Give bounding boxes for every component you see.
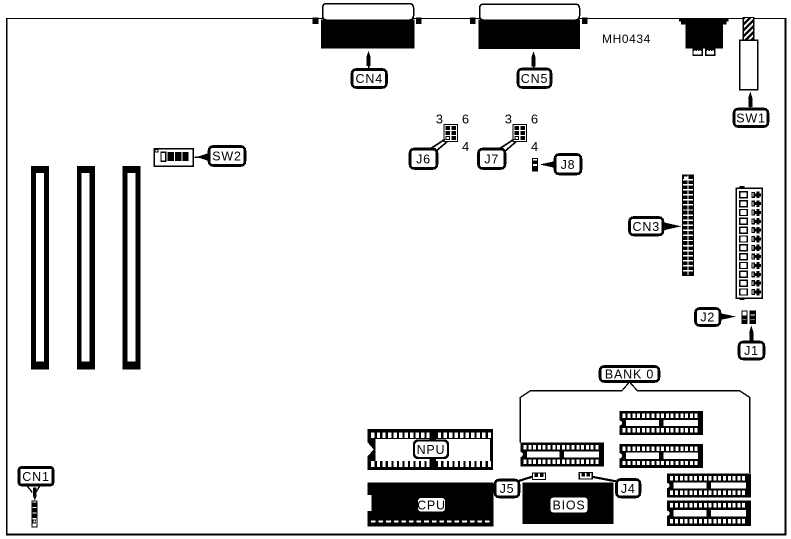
svg-text:CPU: CPU <box>417 498 446 512</box>
svg-text:J5: J5 <box>500 482 515 496</box>
svg-text:SW1: SW1 <box>736 111 766 125</box>
svg-text:J4: J4 <box>621 482 636 496</box>
svg-text:4: 4 <box>462 139 469 154</box>
svg-text:BIOS: BIOS <box>552 499 585 513</box>
svg-text:4: 4 <box>531 139 538 154</box>
svg-text:SW2: SW2 <box>212 150 242 164</box>
svg-text:CN1: CN1 <box>22 470 49 484</box>
svg-text:J8: J8 <box>561 158 576 172</box>
svg-text:BANK 0: BANK 0 <box>605 368 654 382</box>
svg-text:6: 6 <box>531 112 538 127</box>
svg-text:6: 6 <box>462 112 469 127</box>
svg-text:J6: J6 <box>416 152 431 166</box>
svg-text:J1: J1 <box>744 344 759 358</box>
svg-text:CN3: CN3 <box>633 220 660 234</box>
svg-text:CN4: CN4 <box>356 72 383 86</box>
svg-text:J2: J2 <box>700 311 715 325</box>
svg-text:MH0434: MH0434 <box>602 32 651 46</box>
svg-text:NPU: NPU <box>417 443 446 457</box>
svg-text:3: 3 <box>436 112 443 127</box>
svg-text:CN5: CN5 <box>521 72 548 86</box>
svg-text:3: 3 <box>505 112 512 127</box>
svg-text:J7: J7 <box>484 152 499 166</box>
